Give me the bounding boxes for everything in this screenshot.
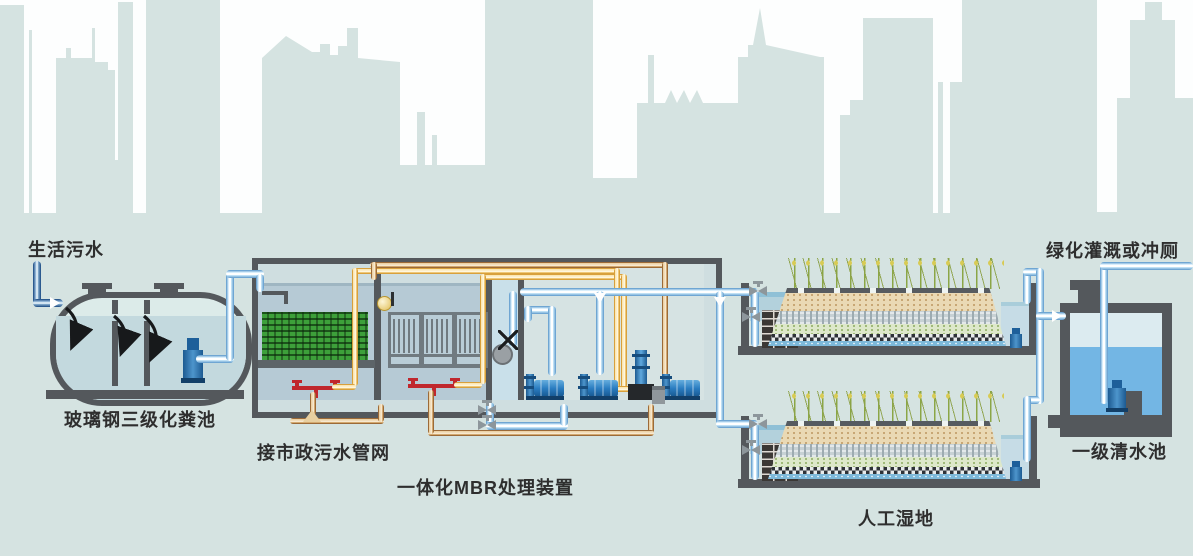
sludge-pipe: [370, 262, 668, 268]
module-frame: [391, 354, 419, 357]
float-bracket: [391, 292, 394, 306]
flow-cone-icon: [594, 293, 606, 303]
transfer-pipe: [226, 271, 234, 361]
reuse-pipe: [1100, 262, 1193, 270]
sludge-pipe: [428, 430, 654, 436]
bed-layer-media: [768, 457, 1006, 467]
air-pipe: [352, 268, 358, 386]
bed-layer-coarse: [768, 467, 1006, 474]
mbr-partition-wall: [374, 264, 381, 400]
air-pipe: [614, 268, 620, 388]
bed-layer-media: [768, 324, 1006, 334]
permeate-pump: [524, 374, 566, 400]
manhole-neck: [160, 289, 178, 295]
air-pipe: [480, 274, 486, 384]
reuse-pipe: [1100, 264, 1108, 404]
bed-layer-water: [768, 341, 1006, 346]
distribution-pipe: [716, 291, 724, 427]
drain-pipe: [378, 404, 384, 422]
wetland-bed: [768, 288, 1006, 346]
outlet-pipe: [1023, 396, 1031, 462]
membrane-plates: [426, 319, 450, 353]
tank-foundation: [1048, 415, 1164, 428]
membrane-plates: [393, 319, 417, 353]
valve-icon: [749, 281, 767, 296]
label-wetland: 人工湿地: [858, 505, 934, 531]
suction-pipe: [524, 306, 532, 322]
flow-arrows: [58, 300, 180, 364]
valve-icon: [742, 440, 760, 455]
membrane-module: [388, 312, 422, 368]
label-clearwater: 一级清水池: [1072, 438, 1167, 464]
label-mbr: 一体化MBR处理装置: [397, 474, 574, 500]
wetland-bed: [768, 421, 1006, 479]
blower-motor: [652, 386, 665, 404]
tank-vent-cap: [1070, 280, 1104, 290]
manhole-cap: [82, 283, 112, 289]
water-surface-line: [258, 283, 488, 286]
transfer-pipe: [256, 274, 264, 292]
underfloor-pipe: [560, 404, 568, 426]
suction-pipe: [548, 306, 556, 376]
valve-icon: [478, 400, 496, 415]
flow-cone-icon: [714, 297, 726, 307]
septic-foundation: [46, 390, 244, 399]
sludge-pipe: [428, 390, 434, 434]
air-pipe: [454, 382, 482, 388]
outlet-trunk-pipe: [1036, 268, 1044, 404]
manhole-neck: [88, 289, 106, 295]
inlet-weir: [284, 291, 288, 304]
membrane-module: [421, 312, 455, 368]
bed-layer-gravel: [768, 444, 1006, 457]
pump-plinth: [1124, 391, 1142, 417]
wastewater-process-diagram: 生活污水 玻璃钢三级化粪池 接市政污水管网 一体化MBR处理装置 人工湿地 一级…: [0, 0, 1193, 556]
valve-icon: [749, 414, 767, 429]
label-septic: 玻璃钢三级化粪池: [64, 406, 216, 432]
air-blower: [628, 350, 668, 400]
manhole-cap: [154, 283, 184, 289]
bed-layer-sand: [768, 293, 1006, 311]
wetland-plants: [788, 258, 1004, 289]
bed-layer-sand: [768, 426, 1006, 444]
aerator-manifold: [408, 378, 460, 396]
flow-cone-icon: [1052, 310, 1062, 322]
label-inflow: 生活污水: [28, 236, 104, 262]
module-stand: [388, 364, 482, 367]
bed-layer-coarse: [768, 334, 1006, 341]
x-mark-icon: [498, 330, 518, 350]
sludge-pipe: [371, 262, 377, 280]
label-reuse: 绿化灌溉或冲厕: [1046, 237, 1179, 263]
tank-vent-neck: [1078, 288, 1100, 305]
underfloor-pipe: [486, 422, 568, 430]
module-frame: [424, 354, 452, 357]
air-pipe: [480, 274, 626, 280]
flow-cone-icon: [50, 297, 60, 309]
wetland-plants: [788, 391, 1004, 422]
air-pipe: [332, 384, 356, 390]
float-ball-icon: [377, 296, 392, 311]
permeate-pipe: [596, 291, 604, 375]
label-municipal: 接市政污水管网: [257, 439, 390, 465]
bed-layer-water: [768, 474, 1006, 479]
valve-icon: [742, 307, 760, 322]
drain-funnel: [303, 410, 321, 422]
bed-layer-gravel: [768, 311, 1006, 324]
valve-icon: [478, 415, 496, 430]
permeate-pump: [578, 374, 620, 400]
